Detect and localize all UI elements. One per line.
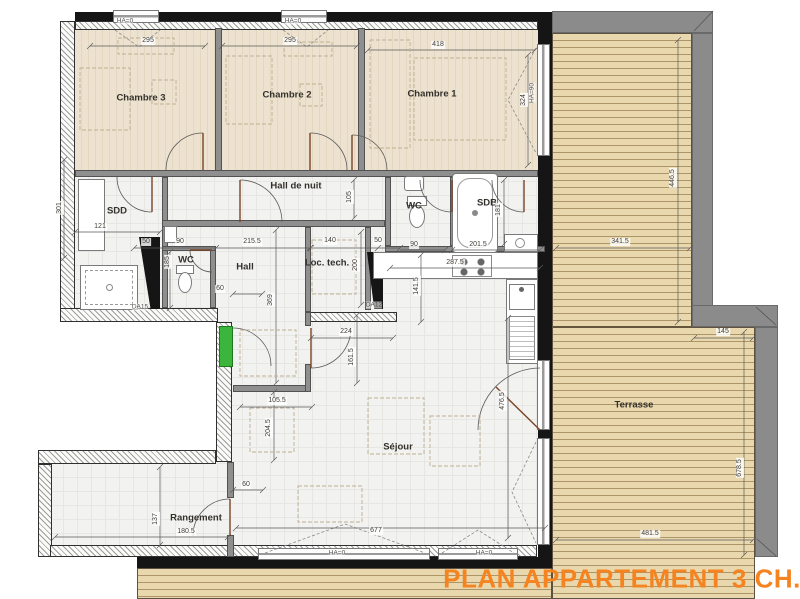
dim-label: 446.5 — [669, 168, 677, 188]
room-label-loc-tech: Loc. tech. — [305, 258, 349, 269]
dim-label: 185 — [164, 255, 172, 269]
room-label-hall: Hall — [236, 262, 253, 273]
dim-label: 204.5 — [265, 418, 273, 438]
dim-label: 481.5 — [640, 530, 660, 538]
dim-label: 287.5 — [445, 259, 465, 267]
room-label-wc1: WC — [178, 255, 194, 266]
dim-label: 181 — [495, 203, 503, 217]
room-label-terrasse: Terrasse — [615, 400, 654, 411]
room-label-sdd: SDD — [107, 206, 127, 217]
room-label-rangement: Rangement — [170, 513, 222, 524]
dim-label: 215.5 — [242, 238, 262, 246]
dim-label: 677 — [369, 527, 383, 535]
dim-label: 105.5 — [267, 397, 287, 405]
dim-label: 161.5 — [348, 347, 356, 367]
duct-label-da12: DA12 — [366, 302, 382, 309]
dim-label: 60 — [215, 285, 225, 293]
dim-label: 90 — [409, 241, 419, 249]
dim-label: 50 — [141, 238, 151, 246]
dim-label: 295 — [141, 37, 155, 45]
window-height-label: HA=0 — [117, 18, 133, 25]
dim-label: 201.5 — [468, 241, 488, 249]
dim-label: 418 — [431, 41, 445, 49]
room-label-chambre1: Chambre 1 — [407, 89, 456, 100]
dim-label: 341.5 — [610, 238, 630, 246]
dim-label: 141.5 — [413, 276, 421, 296]
dim-label: 324 — [520, 93, 528, 107]
room-label-sejour: Séjour — [383, 442, 413, 453]
floor-plan: Chambre 3 Chambre 2 Chambre 1 Hall de nu… — [0, 0, 800, 599]
window-height-label: HA=0 — [476, 550, 492, 557]
room-label-wc2: WC — [406, 201, 422, 212]
dim-label: 90 — [175, 238, 185, 246]
window-height-label: HA=90 — [529, 83, 536, 103]
dim-label: 50 — [373, 237, 383, 245]
dim-label: 224 — [339, 328, 353, 336]
room-label-chambre2: Chambre 2 — [262, 90, 311, 101]
dim-label: 200 — [352, 258, 360, 272]
dim-label: 60 — [241, 481, 251, 489]
dim-label: 476.5 — [499, 391, 507, 411]
dim-label: 140 — [323, 237, 337, 245]
window-height-label: HA=0 — [285, 18, 301, 25]
dim-label: 678.5 — [736, 458, 744, 478]
dim-label: 145 — [716, 328, 730, 336]
dim-label: 180.5 — [176, 528, 196, 536]
room-label-chambre3: Chambre 3 — [116, 93, 165, 104]
room-label-hall-de-nuit: Hall de nuit — [270, 181, 321, 192]
dim-label: 137 — [152, 512, 160, 526]
window-height-label: HA=0 — [329, 550, 345, 557]
dim-label: 301 — [56, 201, 64, 215]
dim-label: 295 — [283, 37, 297, 45]
dim-label: 121 — [93, 223, 107, 231]
annotation-overlay — [0, 0, 800, 599]
plan-title: PLAN APPARTEMENT 3 CH. — [443, 564, 800, 595]
dim-label: 369 — [267, 293, 275, 307]
dim-label: 105 — [346, 190, 354, 204]
duct-label-da15: DA15 — [132, 304, 148, 311]
